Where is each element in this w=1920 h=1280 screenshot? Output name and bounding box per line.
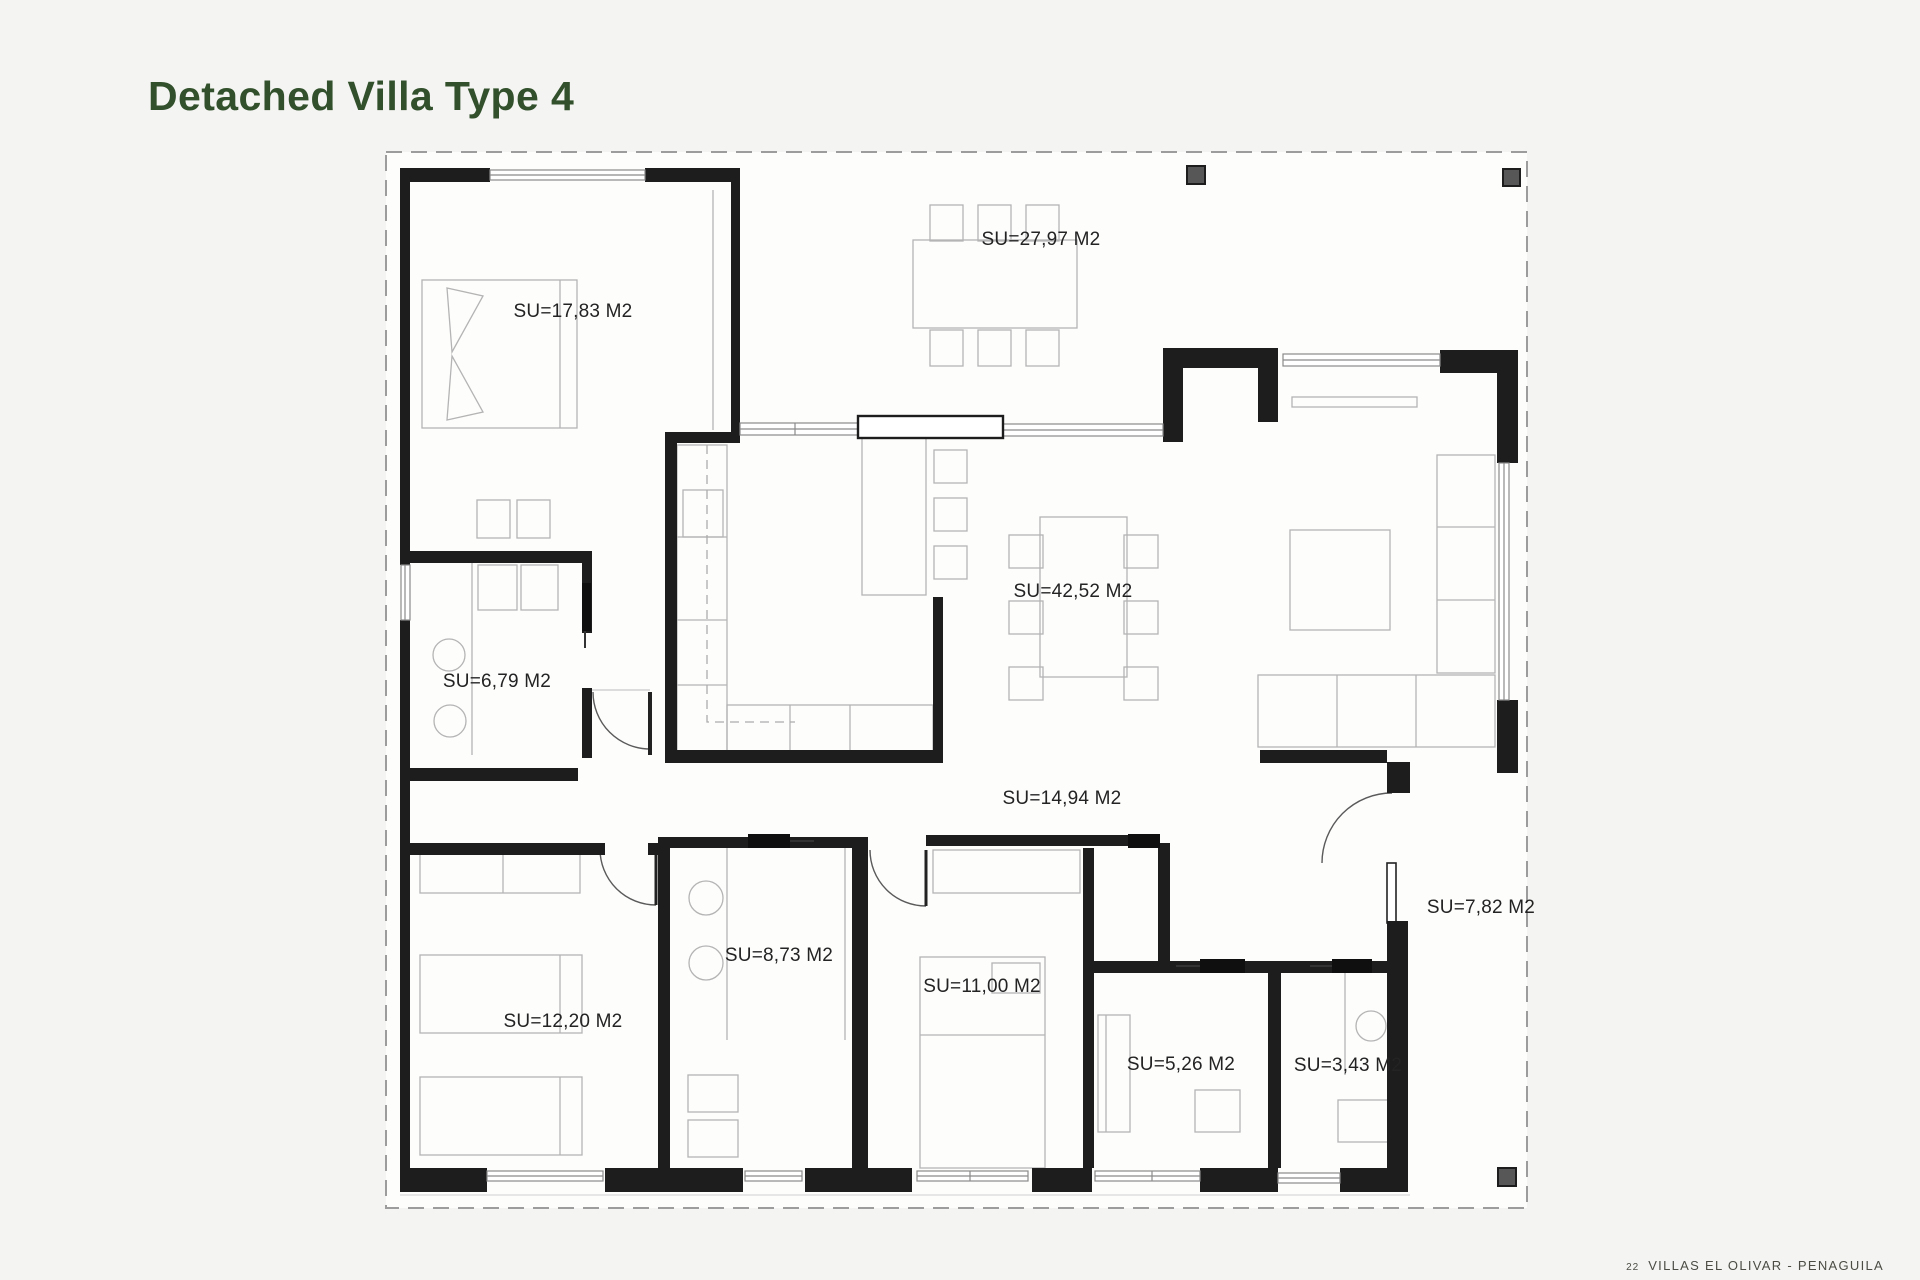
room-label-toilet: SU=3,43 M2	[1294, 1055, 1402, 1077]
room-label-bathroom-2: SU=5,26 M2	[1127, 1054, 1235, 1076]
floor-plan-drawing	[0, 0, 1920, 1280]
footer-page-number: 22	[1626, 1262, 1639, 1273]
room-label-bathroom-1: SU=8,73 M2	[725, 945, 833, 967]
room-label-laundry: SU=6,79 M2	[443, 671, 551, 693]
room-label-side-porch: SU=7,82 M2	[1427, 897, 1535, 919]
footer-project-name: VILLAS EL OLIVAR - PENAGUILA	[1648, 1258, 1884, 1273]
room-label-bedroom-2: SU=12,20 M2	[504, 1011, 623, 1033]
room-label-terrace: SU=27,97 M2	[982, 229, 1101, 251]
room-label-living-dining: SU=42,52 M2	[1014, 581, 1133, 603]
room-label-bedroom-3: SU=11,00 M2	[923, 976, 1041, 998]
room-label-main-bedroom: SU=17,83 M2	[514, 301, 633, 323]
footer: 22 VILLAS EL OLIVAR - PENAGUILA	[1626, 1258, 1884, 1273]
room-label-hallway: SU=14,94 M2	[1003, 788, 1122, 810]
floor-plan-page: Detached Villa Type 4	[0, 0, 1920, 1280]
